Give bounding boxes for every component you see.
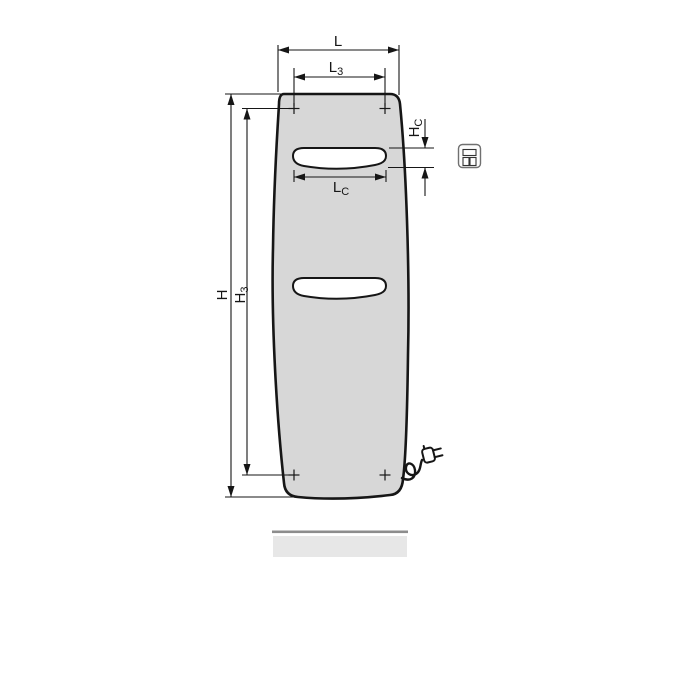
dimension-drawing: L L3 H H3 HC xyxy=(0,0,700,700)
dimension-total-width: L xyxy=(278,33,399,95)
dimension-drawing-page: L L3 H H3 HC xyxy=(0,0,700,700)
dim-label-HC: HC xyxy=(406,119,425,138)
radiator-variant-icon xyxy=(459,145,481,168)
dim-label-L3: L3 xyxy=(329,59,343,78)
middle-cutout xyxy=(293,278,386,299)
dim-label-H: H xyxy=(214,290,231,301)
dim-label-H3: H3 xyxy=(232,287,251,304)
top-cutout xyxy=(293,148,386,169)
floor-bar xyxy=(272,531,408,558)
power-plug xyxy=(421,442,444,463)
dim-label-L: L xyxy=(334,33,342,50)
